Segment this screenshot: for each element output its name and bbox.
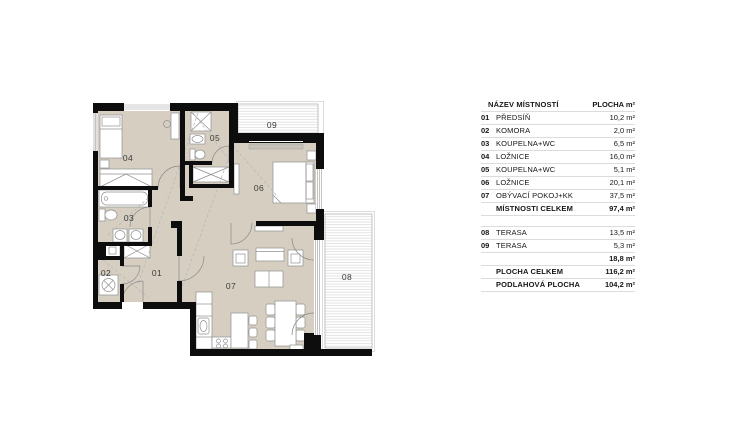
table-row-terraces-total: 18,8 m² xyxy=(481,253,635,266)
room-area-table: NÁZEV MÍSTNOSTÍ PLOCHA m² 01 PŘEDSÍŇ 10,… xyxy=(481,99,635,292)
room-label-04: 04 xyxy=(123,153,133,163)
window-right-room06 xyxy=(316,169,324,209)
terrace-09 xyxy=(237,102,324,135)
toilet-symbol-room05 xyxy=(190,149,205,160)
bathtub-symbol-room03 xyxy=(99,190,150,207)
table-row-total-area: PLOCHA CELKEM 116,2 m² xyxy=(481,266,635,279)
room-label-09: 09 xyxy=(267,120,277,130)
window-left-room04 xyxy=(93,113,98,151)
table-row-terrace08: 08 TERASA 13,5 m² xyxy=(481,227,635,240)
room-label-07: 07 xyxy=(226,281,236,291)
glazed-wall-room07 xyxy=(314,240,321,335)
closet-symbol-hall xyxy=(193,167,229,182)
room-label-08: 08 xyxy=(342,272,352,282)
table-row-rooms-total: MÍSTNOSTI CELKEM 97,4 m² xyxy=(481,203,635,216)
table-row-room03: 03 KOUPELNA+WC 6,5 m² xyxy=(481,138,635,151)
radiator-room06 xyxy=(234,164,239,194)
shaft-niche xyxy=(98,245,120,257)
room-label-02: 02 xyxy=(101,268,111,278)
table-header-name: NÁZEV MÍSTNOSTÍ xyxy=(481,99,592,111)
table-header: NÁZEV MÍSTNOSTÍ PLOCHA m² xyxy=(481,99,635,112)
room-label-05: 05 xyxy=(210,133,220,143)
window-top-room04 xyxy=(124,103,170,111)
table-row-floor-area: PODLAHOVÁ PLOCHA 104,2 m² xyxy=(481,279,635,292)
entry-door-gap xyxy=(122,302,143,309)
dining-table-symbol-room07 xyxy=(266,301,305,346)
toilet-symbol-room03 xyxy=(99,209,117,221)
window-sill-room06 xyxy=(249,144,303,149)
table-row-room04: 04 LOŽNICE 16,0 m² xyxy=(481,151,635,164)
floorplan-page: { "plan": { "labels": { "r01":"01","r02"… xyxy=(0,0,731,443)
washing-machine-symbol-room02 xyxy=(99,275,118,295)
room-label-06: 06 xyxy=(254,183,264,193)
table-row-room02: 02 KOMORA 2,0 m² xyxy=(481,125,635,138)
table-row-room06: 06 LOŽNICE 20,1 m² xyxy=(481,177,635,190)
room-label-03: 03 xyxy=(124,213,134,223)
table-row-terrace09: 09 TERASA 5,3 m² xyxy=(481,240,635,253)
table-row-room05: 05 KOUPELNA+WC 5,1 m² xyxy=(481,164,635,177)
sink-symbol-room05 xyxy=(190,134,205,144)
room-label-01: 01 xyxy=(152,268,162,278)
wardrobe-symbol-room04 xyxy=(100,169,152,187)
table-row-room01: 01 PŘEDSÍŇ 10,2 m² xyxy=(481,112,635,125)
table-header-area: PLOCHA m² xyxy=(592,99,635,111)
table-row-room07: 07 OBÝVACÍ POKOJ+KK 37,5 m² xyxy=(481,190,635,203)
table-gap-row xyxy=(481,216,635,227)
wardrobe-symbol-room01 xyxy=(124,244,150,258)
